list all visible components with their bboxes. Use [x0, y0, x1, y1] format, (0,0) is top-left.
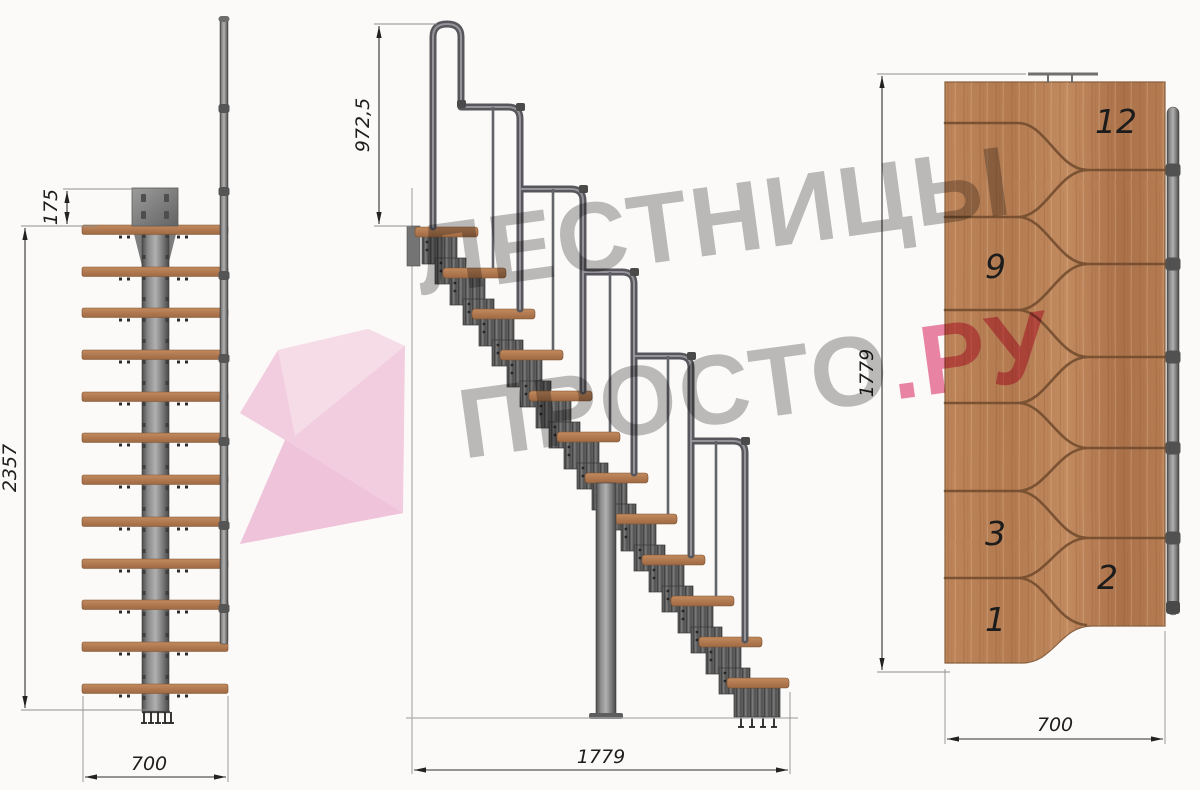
plate-hole — [141, 194, 146, 202]
tread-label-2: 2 — [1097, 558, 1118, 597]
dim-text-700-front: 700 — [131, 753, 167, 775]
dim-total-height: 2357 — [0, 228, 150, 710]
dim-plate-offset: 175 — [21, 189, 137, 226]
plate-hole — [164, 211, 169, 219]
dim-text-2357: 2357 — [0, 444, 21, 492]
wall-mount-plate — [132, 188, 178, 226]
tread-label-9: 9 — [985, 247, 1006, 286]
plan-view: 12 9 3 2 1 1779 700 — [856, 74, 1181, 744]
dim-text-1779-plan: 1779 — [856, 349, 878, 397]
front-railing-post — [219, 16, 230, 644]
side-elevation-view: 972,5 1779 — [352, 24, 798, 774]
drawing-canvas: 175 2357 700 — [0, 0, 1200, 790]
watermark-logo-arrow — [240, 329, 405, 544]
tread-label-3: 3 — [985, 514, 1006, 553]
bottom-step-module — [727, 678, 789, 727]
dim-railing-height: 972,5 — [352, 24, 437, 226]
support-column — [596, 483, 616, 715]
plate-hole — [141, 211, 146, 219]
front-elevation-view: 175 2357 700 — [0, 16, 230, 782]
base-anchor-bolts — [141, 712, 174, 723]
tread-label-12: 12 — [1095, 102, 1137, 141]
dim-text-972-5: 972,5 — [352, 98, 374, 152]
plan-handrail — [1166, 107, 1181, 615]
side-step-modules — [415, 227, 762, 694]
dim-text-700-plan: 700 — [1037, 714, 1073, 736]
dim-text-175: 175 — [40, 189, 62, 225]
plate-hole — [164, 194, 169, 202]
dim-text-1779-side: 1779 — [577, 746, 625, 768]
stringer-bolt-nubs — [142, 226, 169, 712]
staircase-technical-drawing: 175 2357 700 — [0, 0, 1200, 790]
tread-label-1: 1 — [985, 600, 1006, 639]
